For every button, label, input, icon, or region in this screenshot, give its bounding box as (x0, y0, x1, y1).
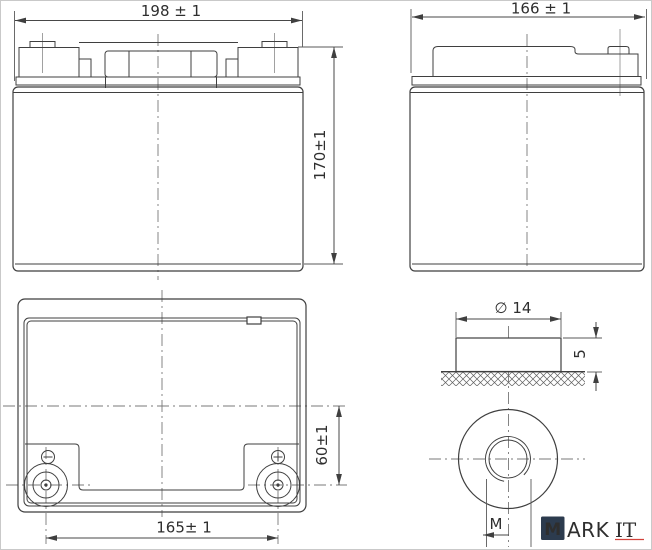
terminal-thread-dimension: M (490, 515, 503, 533)
vent-notch (247, 317, 261, 324)
minus-icon (42, 451, 55, 464)
front-height-dimension: 170±1 (311, 130, 329, 181)
front-view: 198 ± 1 170±1 (13, 2, 343, 280)
terminal-diameter-dimension: ∅ 14 (495, 299, 532, 317)
top-view: 165± 1 60±1 (3, 290, 347, 544)
side-depth-dimension: 166 ± 1 (511, 1, 571, 18)
side-view: 166 ± 1 (410, 1, 647, 271)
battery-drawing-canvas: 198 ± 1 170±1 166 ± 1 (1, 1, 652, 550)
terminal-height-dimension: 5 (571, 349, 589, 359)
terminal-offset-dimension: 60±1 (313, 424, 331, 465)
terminal-spacing-dimension: 165± 1 (156, 519, 212, 537)
watermark-name-serif: IT (615, 518, 637, 542)
watermark-badge-letter: M (544, 520, 561, 540)
terminal-detail-view: ∅ 14 5 M (429, 299, 602, 547)
technical-drawing-page: 198 ± 1 170±1 166 ± 1 (0, 0, 652, 550)
watermark-name-sans: ARK (567, 518, 610, 542)
ground-hatch (441, 372, 585, 386)
front-width-dimension: 198 ± 1 (141, 2, 201, 20)
watermark-logo: M ARK IT (541, 517, 644, 543)
